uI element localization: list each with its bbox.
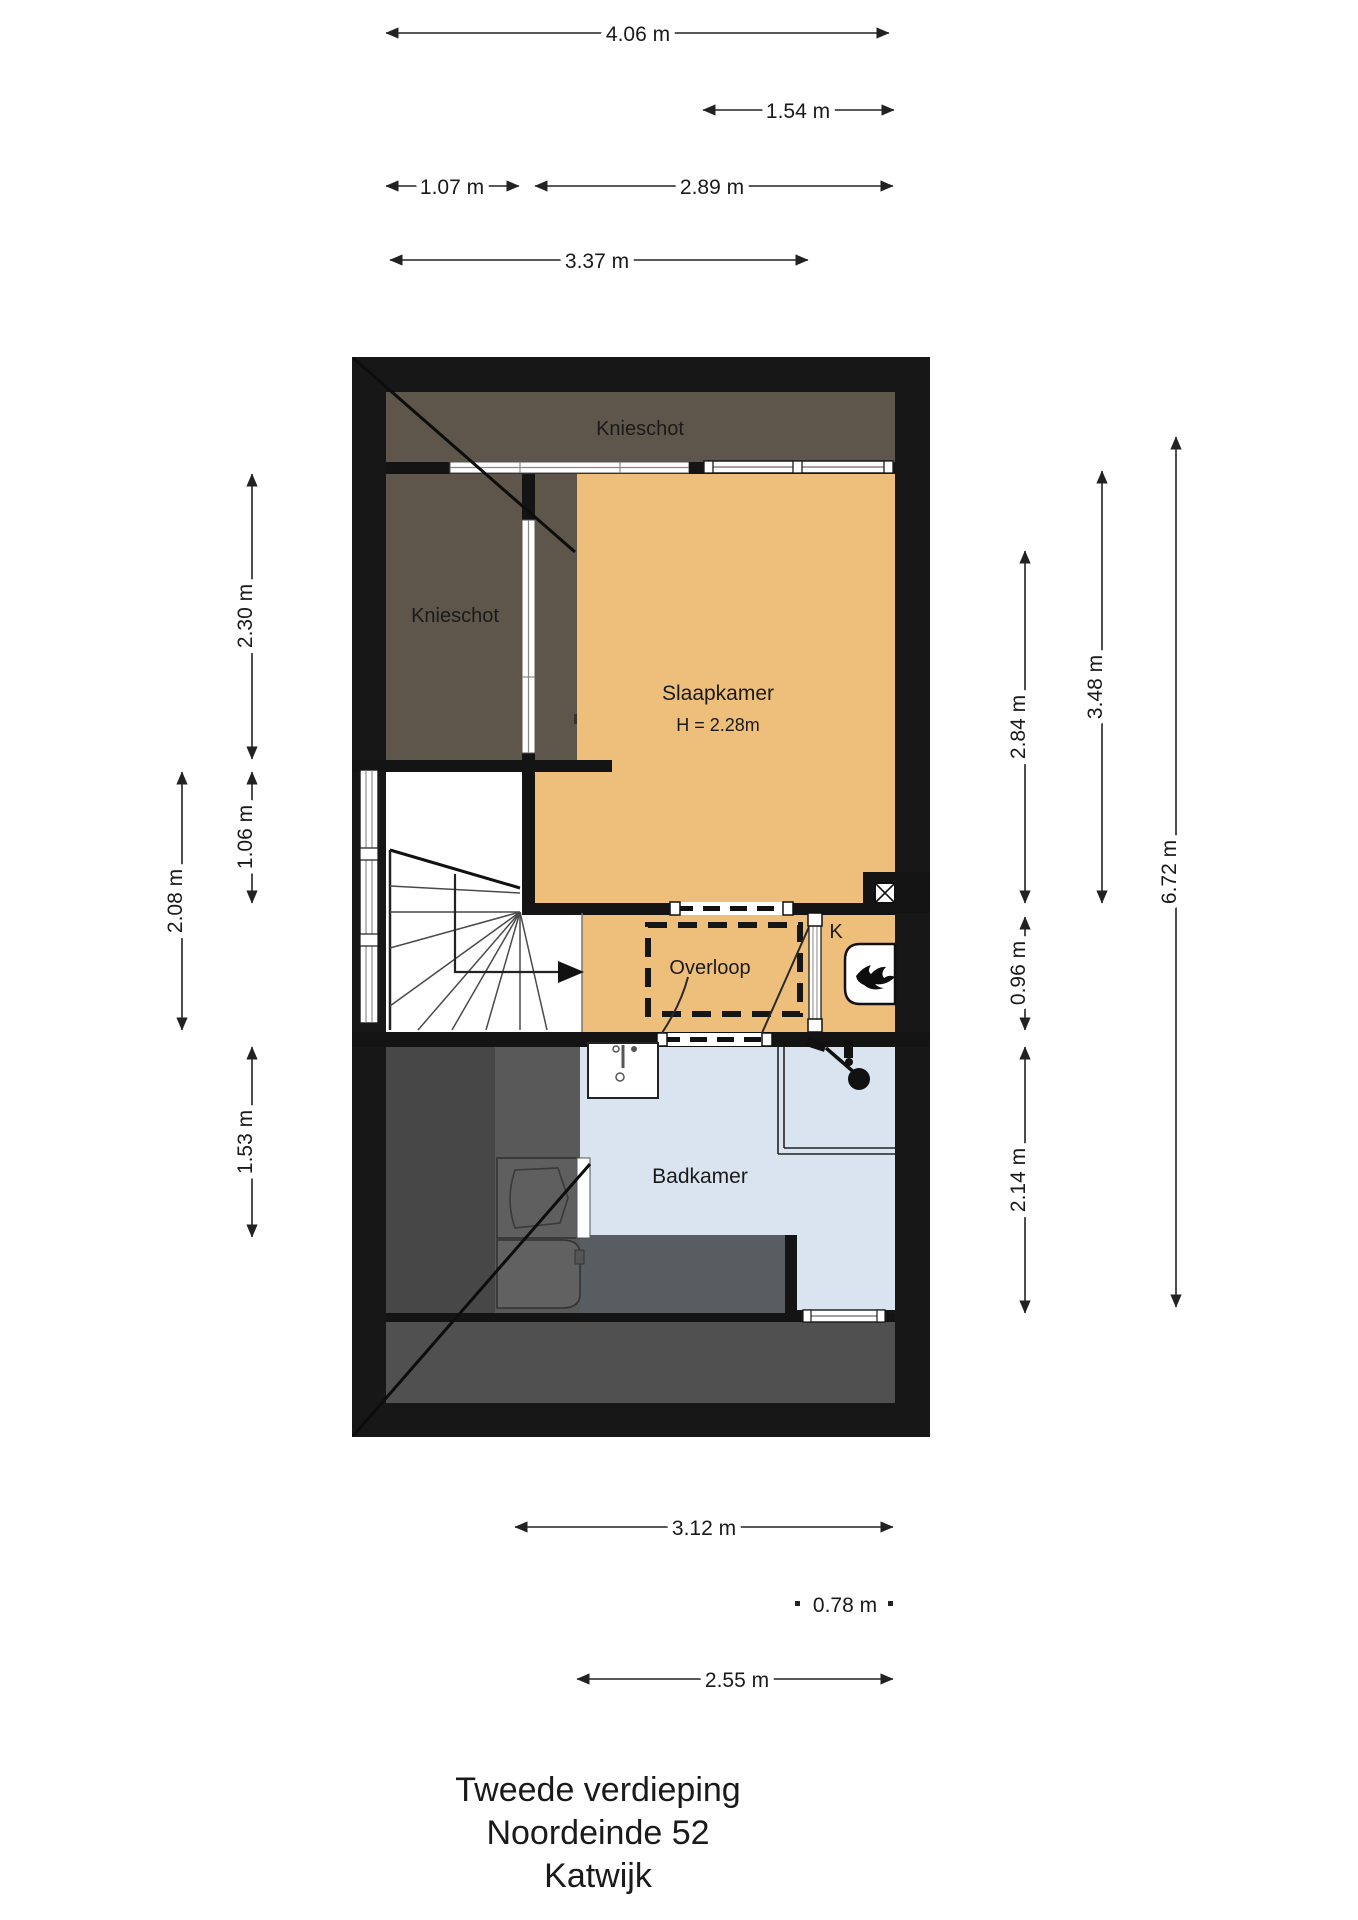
kast-label: K xyxy=(829,921,843,943)
dimension-top-total: 4.06 m xyxy=(386,23,889,46)
room-fills xyxy=(386,392,895,1403)
dimension-left-stairwell: 2.08 m xyxy=(164,772,187,1030)
slaapkamer-sliding-door-icon xyxy=(670,902,793,915)
dimension-top-window: 1.54 m xyxy=(703,100,894,123)
dim-right-slaapkamer-label: 2.84 m xyxy=(1007,695,1030,759)
dim-left-badkamer-label: 1.53 m xyxy=(234,1110,257,1174)
dim-right-kast-label: 0.96 m xyxy=(1007,941,1030,1005)
dimension-top-inner: 3.37 m xyxy=(390,250,808,273)
dimension-top-right-seg: 2.89 m xyxy=(535,176,893,199)
dimensions-right: 2.84 m 0.96 m 2.14 m 3.48 m 6.72 m xyxy=(1007,437,1181,1313)
dimension-bottom-inner: 2.55 m xyxy=(577,1669,893,1692)
dim-bottom-inner-label: 2.55 m xyxy=(705,1669,769,1692)
window-top-inner-icon xyxy=(450,462,689,473)
knieschot-left-label: Knieschot xyxy=(411,605,499,627)
dimension-right-slaapkamer: 2.84 m xyxy=(1007,551,1030,903)
dimension-left-stair-upper: 1.06 m xyxy=(234,772,257,903)
dimension-left-badkamer: 1.53 m xyxy=(234,1047,257,1237)
sink-icon xyxy=(588,1043,658,1098)
floorplan-drawing: Knieschot Knieschot Slaapkamer H = 2.28m… xyxy=(0,0,1358,1920)
floorplan-page: Knieschot Knieschot Slaapkamer H = 2.28m… xyxy=(0,0,1358,1920)
dim-right-slaapkamer-total-label: 3.48 m xyxy=(1084,655,1107,719)
dimensions-bottom: 3.12 m 0.78 m 2.55 m xyxy=(515,1517,893,1692)
dimension-right-kast: 0.96 m xyxy=(1007,917,1030,1030)
overloop-label: Overloop xyxy=(669,957,750,979)
knieschot-top-label: Knieschot xyxy=(596,418,684,440)
dim-top-left-seg-label: 1.07 m xyxy=(420,176,484,199)
window-knieschot-partition-icon xyxy=(522,520,535,753)
window-top-icon xyxy=(704,461,893,473)
dim-bottom-badkamer-total-label: 3.12 m xyxy=(672,1517,736,1540)
dim-top-total-label: 4.06 m xyxy=(606,23,670,46)
window-bottom-icon xyxy=(803,1310,885,1322)
dim-top-inner-label: 3.37 m xyxy=(565,250,629,273)
dim-top-right-seg-label: 2.89 m xyxy=(680,176,744,199)
kast-partition-icon xyxy=(808,913,822,1032)
dimension-right-slaapkamer-total: 3.48 m xyxy=(1084,471,1107,903)
address-line: Noordeinde 52 xyxy=(486,1814,709,1852)
dim-right-total-label: 6.72 m xyxy=(1158,840,1181,904)
toilet-icon xyxy=(497,1158,590,1238)
slaapkamer-label: Slaapkamer xyxy=(662,682,774,705)
dimension-left-knieschot: 2.30 m xyxy=(234,474,257,759)
dimension-right-total: 6.72 m xyxy=(1158,437,1181,1307)
title-block: Tweede verdieping Noordeinde 52 Katwijk xyxy=(455,1771,740,1895)
dim-left-stairwell-label: 2.08 m xyxy=(164,869,187,933)
badkamer-sliding-door-icon xyxy=(657,1033,772,1046)
dimension-bottom-badkamer-total: 3.12 m xyxy=(515,1517,893,1540)
boiler-icon xyxy=(845,944,895,1004)
dimensions-top: 4.06 m 1.54 m 1.07 m 2.89 m 3.37 m xyxy=(386,23,894,273)
city-line: Katwijk xyxy=(544,1857,653,1895)
bath-fixture-icon xyxy=(497,1240,584,1308)
badkamer-label: Badkamer xyxy=(652,1165,748,1188)
dimension-right-badkamer: 2.14 m xyxy=(1007,1047,1030,1313)
dimension-bottom-right-seg: 0.78 m xyxy=(795,1594,893,1617)
slaapkamer-height-label: H = 2.28m xyxy=(676,715,760,735)
dim-top-window-label: 1.54 m xyxy=(766,100,830,123)
dim-left-stair-upper-label: 1.06 m xyxy=(234,805,257,869)
dim-left-knieschot-label: 2.30 m xyxy=(234,584,257,648)
dimension-top-left-seg: 1.07 m xyxy=(386,176,519,199)
vent-shaft-icon xyxy=(875,883,895,903)
window-left-icon xyxy=(360,770,378,1023)
dim-bottom-right-seg-label: 0.78 m xyxy=(813,1594,877,1617)
floor-title: Tweede verdieping xyxy=(455,1771,740,1809)
dim-right-badkamer-label: 2.14 m xyxy=(1007,1148,1030,1212)
dimensions-left: 2.30 m 1.06 m 2.08 m 1.53 m xyxy=(164,474,257,1237)
